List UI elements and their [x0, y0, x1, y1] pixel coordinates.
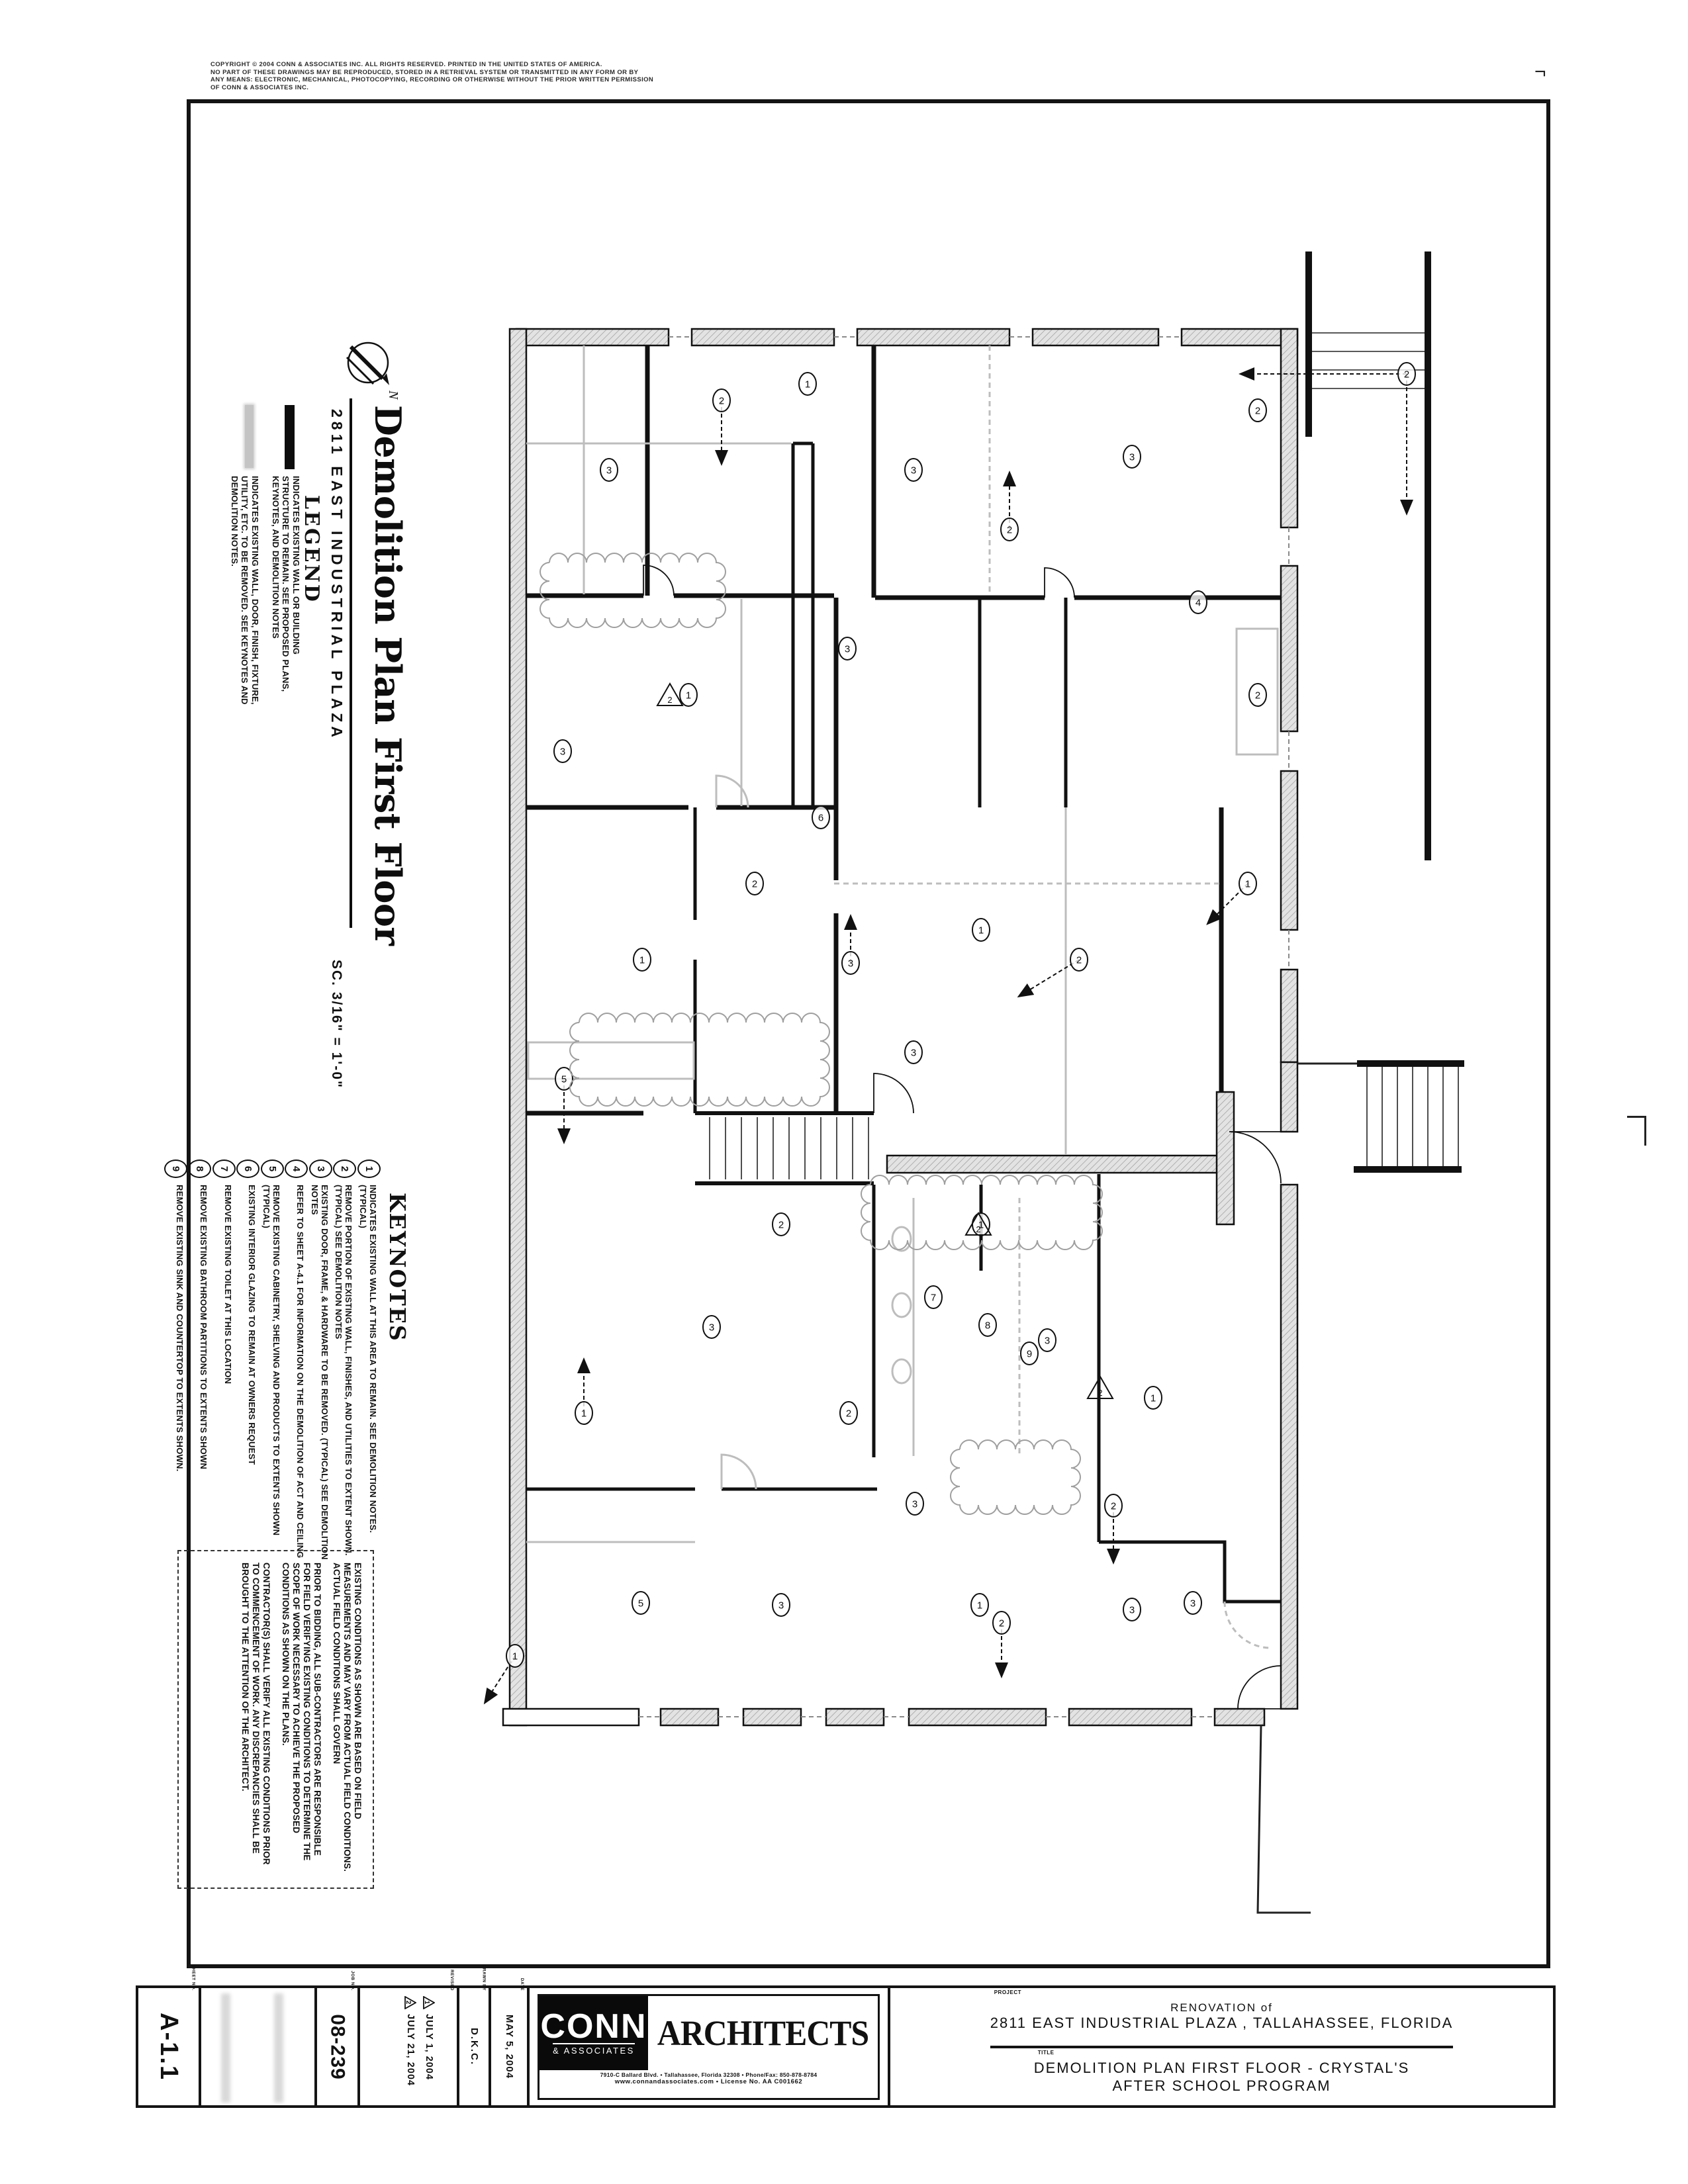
- copyright-notice: COPYRIGHT © 2004 CONN & ASSOCIATES INC. …: [211, 61, 1243, 91]
- project-line1: RENOVATION of: [1170, 2001, 1273, 2015]
- revision-entry: 2JULY 21, 2004: [401, 1996, 420, 2095]
- general-note: CONTRACTOR(S) SHALL VERIFY ALL EXISTING …: [240, 1563, 271, 1876]
- legend-heading: LEGEND: [300, 495, 323, 604]
- keynote-item: 1INDICATES EXISTING WALL AT THIS AREA TO…: [357, 1160, 382, 1583]
- legend-item-text: INDICATES EXISTING WALL, DOOR, FINISH, F…: [230, 476, 261, 707]
- legend-swatch-wall-remain: [285, 405, 295, 469]
- legend-item: INDICATES EXISTING WALL, DOOR, FINISH, F…: [220, 405, 258, 716]
- keynote-bubble-number: 5: [561, 1074, 567, 1085]
- keynote-text: REMOVE EXISTING BATHROOM PARTITIONS TO E…: [199, 1185, 212, 1572]
- keynote-bubble-number: 3: [709, 1322, 714, 1334]
- project-cell: PROJECT RENOVATION of 2811 EAST INDUSTRI…: [990, 1988, 1454, 2048]
- keynote-number: 1: [357, 1160, 381, 1178]
- keynote-bubble-number: 3: [606, 465, 612, 477]
- keynote-text: EXISTING DOOR, FRAME, & HARDWARE TO BE R…: [310, 1185, 333, 1572]
- demolition-cloud: [540, 553, 726, 627]
- keynote-bubble-number: 1: [581, 1408, 586, 1420]
- keynote-bubble-number: 2: [1255, 406, 1260, 417]
- title-underline: [350, 398, 352, 928]
- keynote-text: REMOVE PORTION OF EXISTING WALL, FINISHE…: [334, 1185, 357, 1572]
- keynote-bubble-number: 2: [999, 1618, 1004, 1629]
- revision-triangle-number: 2: [976, 1224, 980, 1234]
- scan-streak: [274, 1993, 283, 2103]
- legend-item-text: INDICATES EXISTING WALL OR BUILDING STRU…: [271, 476, 302, 707]
- keynote-bubble-number: 2: [846, 1408, 851, 1420]
- keynote-bubble-number: 3: [560, 747, 565, 758]
- keynote-bubble-number: 1: [1245, 879, 1250, 890]
- keynote-text: INDICATES EXISTING WALL AT THIS AREA TO …: [358, 1185, 381, 1572]
- keynote-bubble-number: 3: [1045, 1336, 1050, 1347]
- sheet-title-cell: TITLE DEMOLITION PLAN FIRST FLOOR - CRYS…: [1034, 2048, 1410, 2106]
- keynote-bubble-number: 3: [1129, 1605, 1135, 1616]
- project-title-cells: PROJECT RENOVATION of 2811 EAST INDUSTRI…: [890, 1988, 1553, 2105]
- legend-swatch-wall-remove: [245, 405, 254, 468]
- revision-entry: 1JULY 1, 2004: [420, 1996, 438, 2095]
- rotated-text-panel: N Demolition Plan First Floor 2811 EAST …: [146, 99, 410, 1972]
- scan-streak: [221, 1993, 230, 2103]
- keynote-bubble-number: 3: [1129, 452, 1135, 463]
- keynote-bubble-number: 1: [1150, 1393, 1156, 1404]
- keynote-bubble-number: 1: [805, 379, 810, 390]
- keynote-bubble-number: 5: [638, 1598, 643, 1610]
- keynote-item: 4REFER TO SHEET A-4.1 FOR INFORMATION ON…: [285, 1160, 309, 1583]
- keynotes-heading: KEYNOTES: [385, 1193, 410, 1342]
- demolition-cloud: [951, 1440, 1080, 1514]
- keynote-text: REMOVE EXISTING TOILET AT THIS LOCATION: [223, 1185, 236, 1572]
- keynote-item: 5REMOVE EXISTING CABINETRY, SHELVING AND…: [261, 1160, 285, 1583]
- interior-stair: [695, 1113, 874, 1183]
- keynote-bubble-number: 9: [1027, 1349, 1032, 1360]
- keynote-bubble-number: 4: [1196, 598, 1201, 609]
- keynote-number: 7: [212, 1160, 236, 1178]
- keynote-bubble-number: 1: [639, 955, 645, 966]
- keynote-item: 6EXISTING INTERIOR GLAZING TO REMAIN AT …: [236, 1160, 261, 1583]
- sheet-number: A-1.1: [154, 2013, 183, 2081]
- firm-logo-cell: CONN & ASSOCIATES ARCHITECTS 7910-C Ball…: [530, 1988, 890, 2105]
- keynote-item: 8REMOVE EXISTING BATHROOM PARTITIONS TO …: [188, 1160, 212, 1583]
- keynote-item: 9REMOVE EXISTING SINK AND COUNTERTOP TO …: [164, 1160, 189, 1583]
- date-value: MAY 5, 2004: [504, 2015, 515, 2079]
- keynote-bubble-number: 2: [1111, 1501, 1116, 1512]
- exterior-stair-north: [1305, 251, 1431, 860]
- firm-address: 7910-C Ballard Blvd. • Tallahassee, Flor…: [600, 2071, 818, 2078]
- sheet-number-label: SHEET NO.: [191, 1964, 196, 1991]
- firm-name-right: ARCHITECTS: [657, 1996, 868, 2070]
- firm-logo-mark: CONN & ASSOCIATES: [539, 1996, 648, 2070]
- keynote-bubble-number: 7: [931, 1293, 936, 1304]
- copyright-line: NO PART OF THESE DRAWINGS MAY BE REPRODU…: [211, 69, 1243, 77]
- keynote-bubble-number: 3: [845, 644, 850, 655]
- general-notes-box: EXISTING CONDITIONS AS SHOWN ARE BASED O…: [177, 1550, 374, 1889]
- blank-cell: [201, 1988, 317, 2105]
- revision-triangle-icon: 2: [404, 1996, 416, 2009]
- firm-website: www.connandassociates.com • License No. …: [615, 2078, 803, 2085]
- exterior-walls: [503, 329, 1297, 1725]
- general-note: EXISTING CONDITIONS AS SHOWN ARE BASED O…: [331, 1563, 363, 1876]
- copyright-line: OF CONN & ASSOCIATES INC.: [211, 84, 1243, 92]
- revision-triangle-number: 2: [667, 695, 672, 705]
- revisions-label: REVISED: [449, 1970, 454, 1991]
- keynote-bubble-number: 2: [778, 1220, 784, 1231]
- keynote-bubble-number: 1: [978, 925, 984, 936]
- date-cell: DATE MAY 5, 2004: [491, 1988, 530, 2105]
- keynote-bubble-number: 3: [911, 1048, 916, 1059]
- margin-registration-mark: [1627, 1116, 1646, 1146]
- keynote-bubble-number: 1: [686, 690, 691, 702]
- drawn-by-label: DRAWN BY: [481, 1965, 486, 1991]
- keynote-number: 3: [309, 1160, 332, 1178]
- keynote-number: 8: [189, 1160, 212, 1178]
- general-note: PRIOR TO BIDDING, ALL SUB-CONTRACTORS AR…: [280, 1563, 322, 1876]
- keynote-bubble-number: 3: [912, 1499, 917, 1510]
- job-number-cell: JOB NO. 08-239: [317, 1988, 360, 2105]
- svg-text:N: N: [386, 390, 400, 400]
- project-label: PROJECT: [994, 1989, 1021, 1995]
- firm-name-sub: & ASSOCIATES: [553, 2043, 635, 2056]
- copyright-line: COPYRIGHT © 2004 CONN & ASSOCIATES INC. …: [211, 61, 1243, 69]
- keynotes-list: 1INDICATES EXISTING WALL AT THIS AREA TO…: [164, 1160, 382, 1583]
- keynote-bubble-number: 2: [1255, 690, 1260, 702]
- revision-triangle-icon: 1: [423, 1996, 435, 2009]
- keynote-text: REMOVE EXISTING SINK AND COUNTERTOP TO E…: [175, 1185, 188, 1572]
- keynote-bubble-number: 3: [1190, 1598, 1196, 1610]
- sheet-title-line1: DEMOLITION PLAN FIRST FLOOR - CRYSTAL'S: [1034, 2059, 1410, 2077]
- keynote-number: 9: [164, 1160, 187, 1178]
- revision-date: JULY 21, 2004: [405, 2014, 416, 2086]
- keynote-bubble-number: 1: [512, 1651, 518, 1662]
- keynote-bubble-number: 2: [719, 396, 724, 407]
- drawing-subtitle: 2811 EAST INDUSTRIAL PLAZA: [328, 409, 346, 741]
- drawn-by-cell: DRAWN BY D.K.C.: [459, 1988, 491, 2105]
- date-label: DATE: [520, 1978, 524, 1991]
- sheet-title-label: TITLE: [1038, 2050, 1055, 2056]
- sheet-title-line2: AFTER SCHOOL PROGRAM: [1112, 2077, 1331, 2095]
- copyright-line: ANY MEANS: ELECTRONIC, MECHANICAL, PHOTO…: [211, 76, 1243, 84]
- keynote-bubble-number: 3: [911, 465, 916, 477]
- keynote-item: 7REMOVE EXISTING TOILET AT THIS LOCATION: [212, 1160, 237, 1583]
- keynote-leader: [1019, 960, 1079, 996]
- drawing-title: Demolition Plan First Floor: [367, 405, 409, 945]
- sheet-number-cell: SHEET NO. A-1.1: [138, 1988, 201, 2105]
- keynote-text: REMOVE EXISTING CABINETRY, SHELVING AND …: [261, 1185, 285, 1572]
- demolition-ghost-elements: [526, 345, 1278, 1648]
- interior-walls: [526, 345, 1281, 1602]
- keynote-text: REFER TO SHEET A-4.1 FOR INFORMATION ON …: [296, 1185, 309, 1572]
- keynote-bubble-number: 8: [985, 1320, 990, 1332]
- revision-triangle-number: 2: [1098, 1388, 1102, 1398]
- keynote-number: 2: [334, 1160, 357, 1178]
- keynote-number: 4: [285, 1160, 308, 1178]
- floor-plan: 3213232422131362131253217893123135312312…: [410, 99, 1542, 1972]
- site-line: [1258, 1725, 1311, 1913]
- svg-text:1: 1: [423, 2001, 430, 2005]
- keynote-item: 3EXISTING DOOR, FRAME, & HARDWARE TO BE …: [309, 1160, 334, 1583]
- keynote-number: 5: [261, 1160, 284, 1178]
- demolition-cloud: [570, 1013, 829, 1106]
- door-swings: [643, 565, 1281, 1709]
- keynote-bubble-number: 2: [1076, 955, 1082, 966]
- svg-text:2: 2: [404, 2001, 412, 2005]
- plan-annotations: 3213232422131362131253217893123135312312…: [485, 363, 1415, 1702]
- job-number: 08-239: [326, 2014, 349, 2079]
- keynote-item: 2REMOVE PORTION OF EXISTING WALL, FINISH…: [333, 1160, 357, 1583]
- exterior-stair-east: [1297, 1060, 1464, 1173]
- revisions-cell: REVISED 1JULY 1, 20042JULY 21, 2004: [360, 1988, 459, 2105]
- project-line2: 2811 EAST INDUSTRIAL PLAZA , TALLAHASSEE…: [990, 2015, 1454, 2032]
- keynote-text: EXISTING INTERIOR GLAZING TO REMAIN AT O…: [248, 1185, 261, 1572]
- job-number-label: JOB NO.: [350, 1971, 355, 1991]
- drawing-scale: SC. 3/16" = 1'-0": [328, 960, 344, 1089]
- keynote-bubble-number: 2: [1007, 525, 1012, 536]
- keynote-bubble-number: 2: [752, 879, 757, 890]
- firm-logo: CONN & ASSOCIATES ARCHITECTS 7910-C Ball…: [538, 1994, 880, 2100]
- keynote-bubble-number: 3: [778, 1600, 784, 1612]
- firm-logo-row: CONN & ASSOCIATES ARCHITECTS: [539, 1996, 878, 2070]
- firm-name-main: CONN: [540, 2010, 647, 2043]
- drawn-by-value: D.K.C.: [469, 2028, 480, 2066]
- north-arrow-icon: N: [338, 324, 409, 410]
- revisions-list: 1JULY 1, 20042JULY 21, 2004: [399, 1996, 438, 2095]
- keynote-number: 6: [237, 1160, 260, 1178]
- keynote-bubble-number: 3: [848, 958, 853, 970]
- keynote-bubble-number: 2: [1404, 369, 1409, 381]
- keynote-bubble-number: 6: [818, 813, 823, 824]
- corner-fold-mark: ¬: [1534, 61, 1546, 83]
- title-block: SHEET NO. A-1.1 JOB NO. 08-239 REVISED 1…: [136, 1985, 1556, 2108]
- revision-date: JULY 1, 2004: [424, 2014, 434, 2080]
- legend-item: INDICATES EXISTING WALL OR BUILDING STRU…: [261, 405, 299, 716]
- keynote-bubble-number: 1: [977, 1600, 982, 1612]
